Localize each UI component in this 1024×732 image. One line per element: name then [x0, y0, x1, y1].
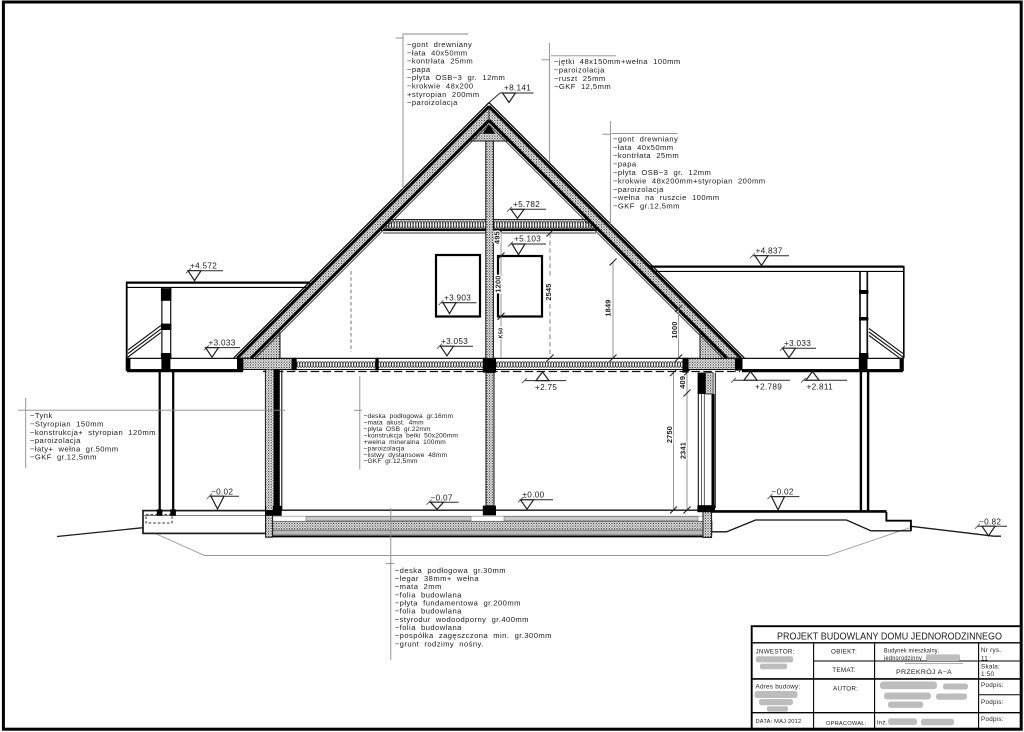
svg-text:1849: 1849 [604, 299, 613, 316]
svg-text:−0.02: −0.02 [211, 487, 233, 496]
svg-text:Adres budowy:: Adres budowy: [756, 684, 801, 691]
svg-text:+3.033: +3.033 [784, 339, 811, 348]
svg-text:−grunt rodzimy nośny.: −grunt rodzimy nośny. [395, 639, 484, 648]
svg-text:−GKF gr.12,5mm: −GKF gr.12,5mm [613, 202, 680, 211]
svg-text:+3.033: +3.033 [209, 338, 236, 347]
svg-text:−0.02: −0.02 [772, 488, 794, 497]
svg-text:11: 11 [981, 656, 988, 663]
svg-text:+5.782: +5.782 [513, 200, 540, 209]
svg-text:2750: 2750 [665, 426, 674, 443]
svg-text:+3.903: +3.903 [444, 293, 471, 302]
svg-text:Skala:: Skala: [981, 664, 1000, 671]
svg-text:AUTOR:: AUTOR: [833, 686, 858, 693]
svg-text:2545: 2545 [544, 283, 553, 300]
svg-text:K50: K50 [498, 328, 504, 339]
svg-text:−0.82: −0.82 [979, 517, 1001, 526]
svg-text:+4.572: +4.572 [190, 261, 217, 270]
svg-text:2341: 2341 [678, 442, 687, 459]
svg-text:TEMAT:: TEMAT: [832, 667, 855, 674]
svg-text:+2.811: +2.811 [807, 383, 834, 392]
svg-text:OPRACOWAŁ:: OPRACOWAŁ: [826, 721, 867, 727]
svg-text:1000: 1000 [670, 321, 679, 338]
svg-text:Podpis:: Podpis: [981, 699, 1004, 706]
svg-text:−GKF 12,5mm: −GKF 12,5mm [554, 82, 611, 91]
svg-text:1:50: 1:50 [981, 671, 995, 678]
svg-text:−GKF gr.12,5mm: −GKF gr.12,5mm [30, 453, 97, 462]
svg-text:Budynek mieszkalny,: Budynek mieszkalny, [884, 648, 939, 655]
svg-text:+4.837: +4.837 [756, 246, 783, 255]
svg-text:OBIEKT:: OBIEKT: [831, 649, 857, 656]
svg-text:JNWESTOR:: JNWESTOR: [756, 649, 795, 656]
svg-text:+5.103: +5.103 [514, 235, 541, 244]
svg-text:PROJEKT BUDOWLANY DOMU JEDNORO: PROJEKT BUDOWLANY DOMU JEDNORODZINNEGO [777, 632, 1002, 643]
svg-text:+2.75: +2.75 [535, 383, 557, 392]
svg-text:−GKF gr.12,5mm: −GKF gr.12,5mm [364, 458, 419, 465]
svg-text:inż.: inż. [877, 720, 888, 727]
svg-text:1200: 1200 [494, 275, 503, 292]
svg-text:Podpis:: Podpis: [981, 682, 1004, 689]
svg-text:±0.00: ±0.00 [523, 490, 545, 499]
svg-text:+3.053: +3.053 [441, 337, 468, 346]
svg-text:Nr rys.: Nr rys. [981, 647, 1001, 654]
svg-text:DATA: MAJ 2012: DATA: MAJ 2012 [756, 719, 802, 725]
svg-text:PRZEKRÓJ A−A: PRZEKRÓJ A−A [896, 667, 953, 676]
svg-text:−paroizolacja: −paroizolacja [407, 98, 458, 107]
svg-text:jednorodzinny: jednorodzinny [883, 655, 922, 662]
svg-text:495: 495 [493, 231, 502, 244]
svg-text:409: 409 [678, 376, 687, 389]
svg-text:+2.789: +2.789 [755, 383, 782, 392]
svg-text:Podpis:: Podpis: [981, 716, 1004, 723]
svg-text:+8.141: +8.141 [504, 84, 531, 93]
svg-text:−0.07: −0.07 [431, 493, 453, 502]
